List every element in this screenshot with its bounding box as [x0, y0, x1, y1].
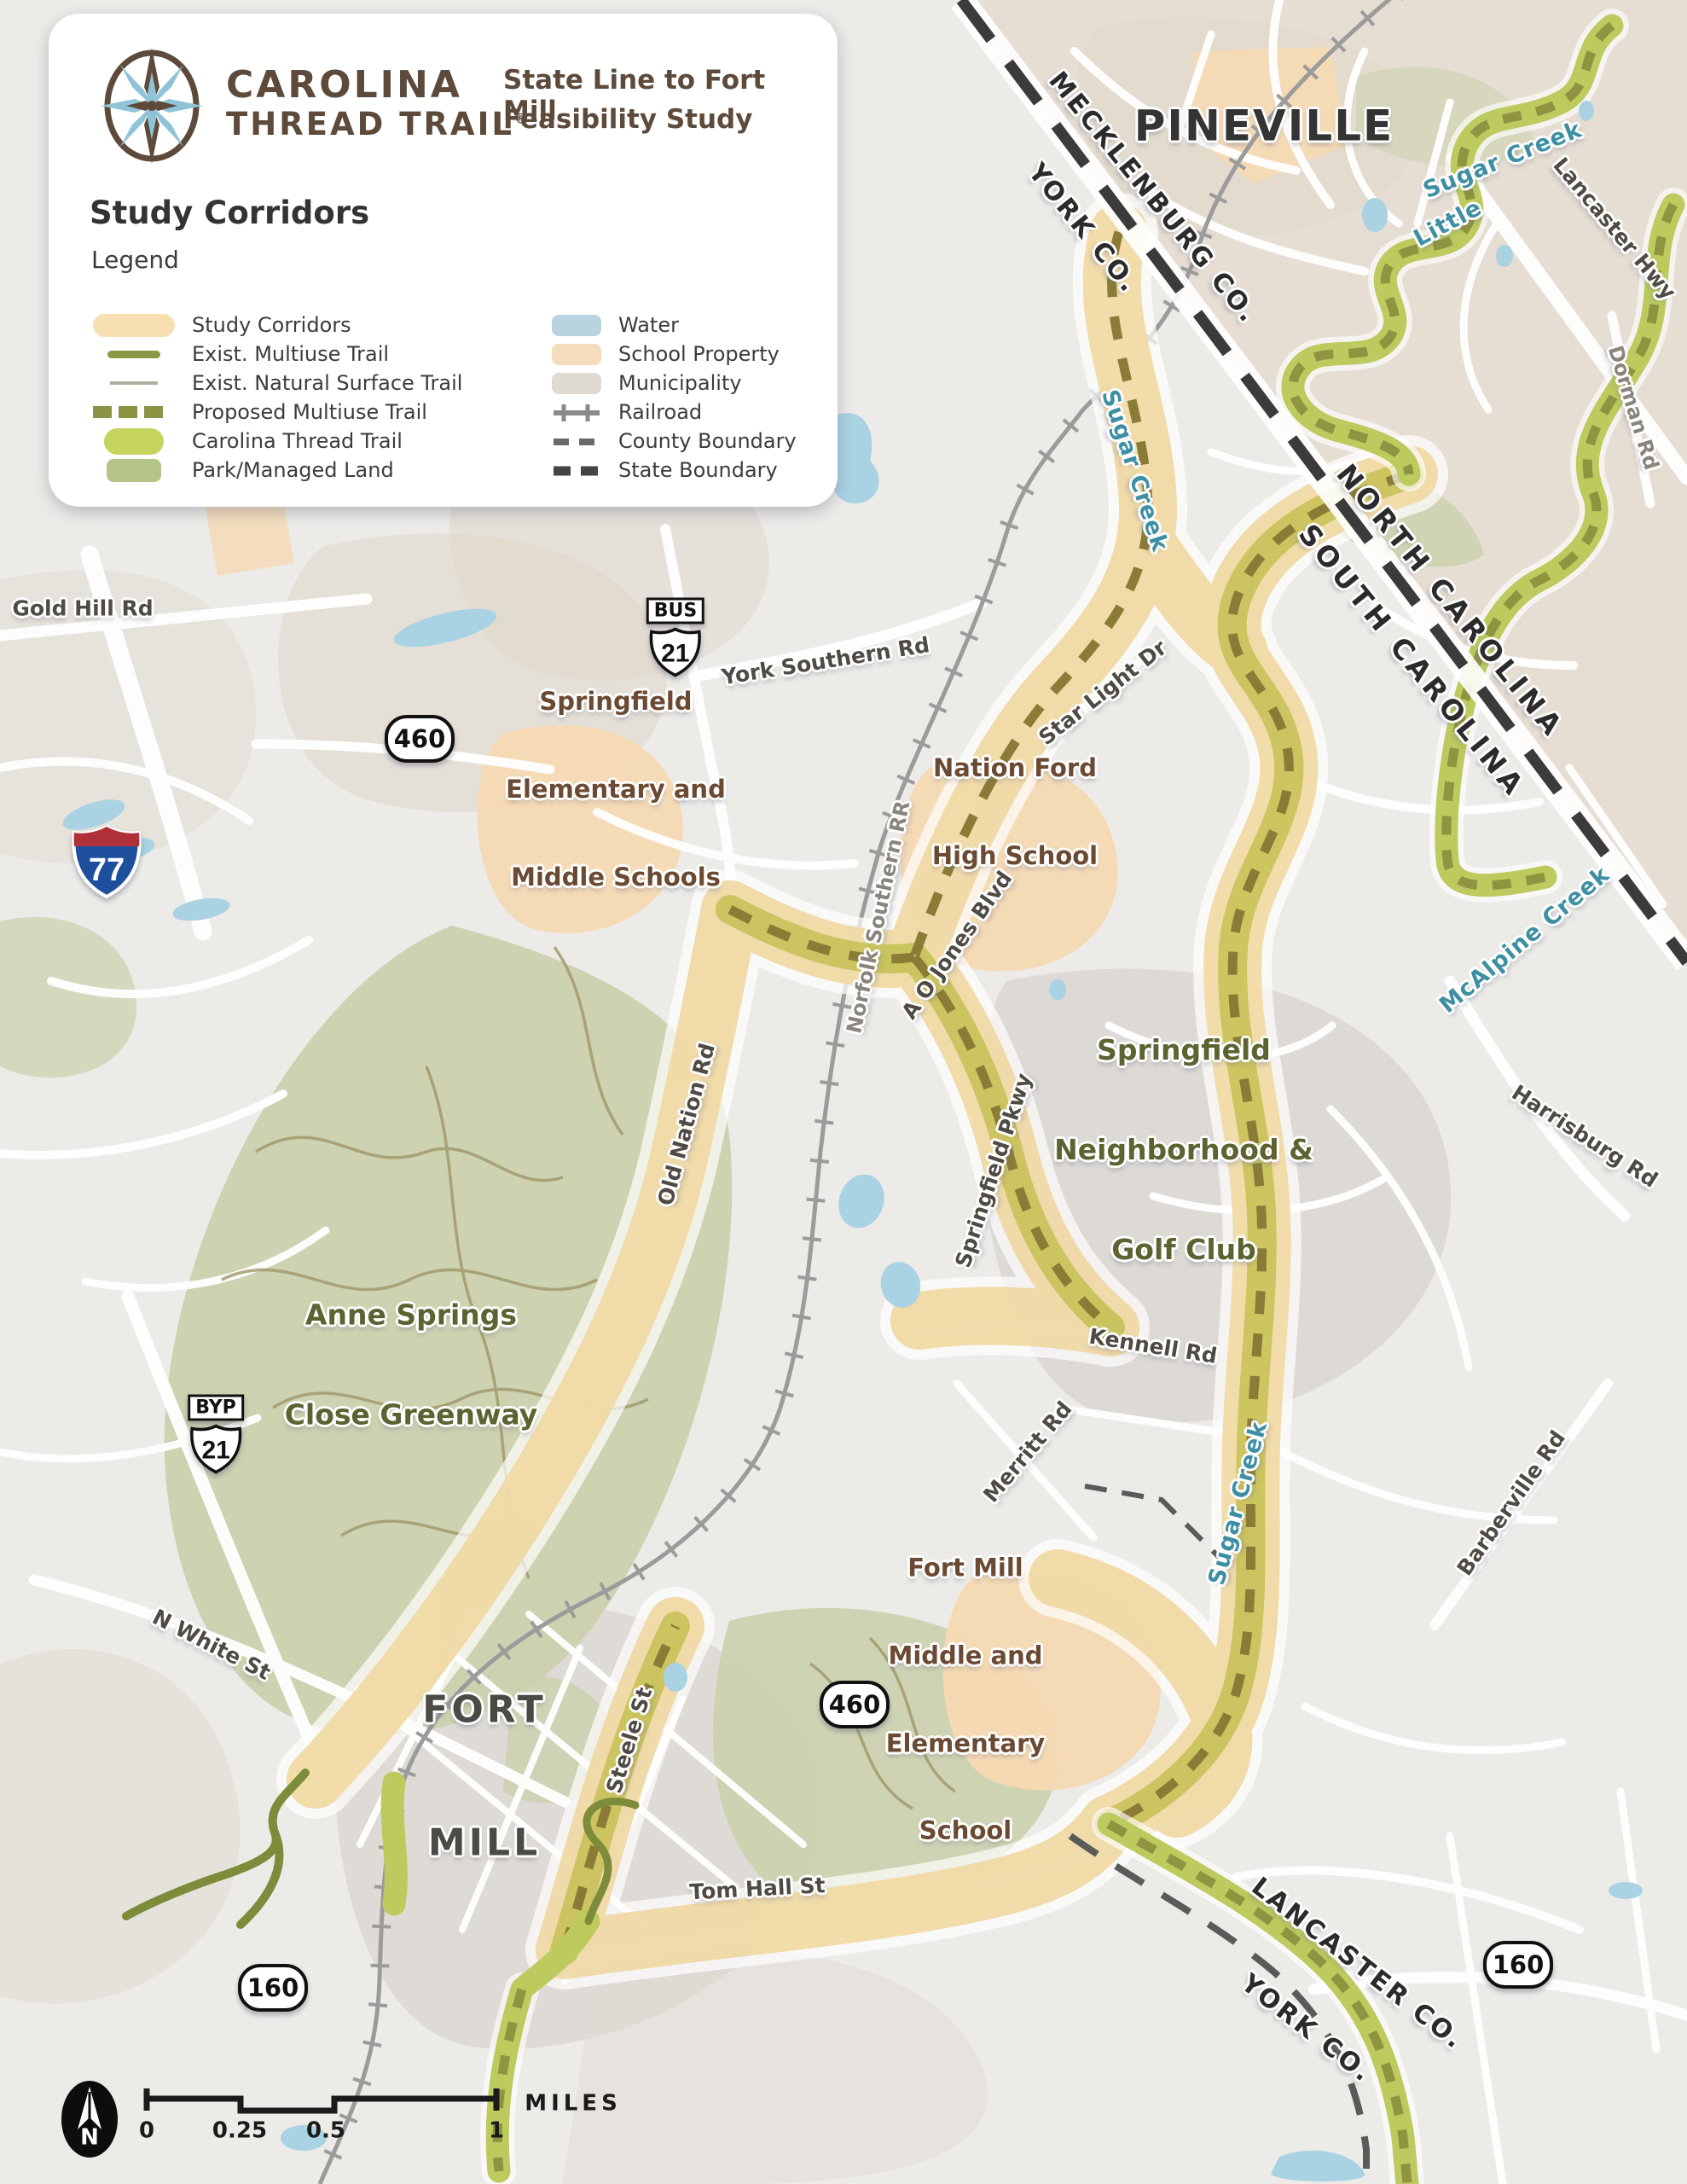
- legend-item-natural-surface: Exist. Natural Surface Trail: [93, 369, 462, 398]
- legend-item-state-boundary: State Boundary: [552, 456, 778, 485]
- multiuse-trail-swatch: [107, 351, 160, 358]
- school-property-swatch: [552, 344, 601, 365]
- legend-item-water: Water: [552, 311, 679, 340]
- legend-item-carolina-thread-trail: Carolina Thread Trail: [93, 427, 403, 456]
- legend-header: CAROLINA THREAD TRAIL® State Line to For…: [81, 39, 815, 167]
- railroad-swatch: [552, 402, 601, 423]
- park-swatch: [107, 459, 161, 482]
- legend-item-proposed-multiuse: Proposed Multiuse Trail: [93, 398, 427, 427]
- north-arrow: [61, 2081, 118, 2158]
- brand-name-line1: CAROLINA: [226, 63, 462, 107]
- carolina-thread-trail-logo: [96, 46, 207, 166]
- municipality-swatch: [552, 373, 601, 394]
- legend-subtitle: Legend: [91, 246, 179, 274]
- county-boundary-swatch: [552, 431, 601, 452]
- brand-name-line2: THREAD TRAIL®: [226, 106, 530, 142]
- map-page: { "header": { "brand_line1": "CAROLINA",…: [0, 0, 1687, 2184]
- map-title-line2: Feasibility Study: [503, 104, 752, 135]
- legend-item-exist-multiuse: Exist. Multiuse Trail: [93, 340, 389, 369]
- legend-item-county-boundary: County Boundary: [552, 427, 797, 456]
- legend-panel: CAROLINA THREAD TRAIL® State Line to For…: [49, 14, 838, 507]
- legend-item-study-corridors: Study Corridors: [93, 311, 351, 340]
- water-swatch: [552, 315, 601, 336]
- legend-item-railroad: Railroad: [552, 398, 702, 427]
- legend-item-park-land: Park/Managed Land: [93, 456, 394, 485]
- legend-title: Study Corridors: [90, 195, 369, 231]
- ctt-swatch: [104, 428, 164, 455]
- study-corridor-swatch: [93, 314, 175, 337]
- legend-item-municipality: Municipality: [552, 369, 742, 398]
- legend-item-school-property: School Property: [552, 340, 780, 369]
- natural-surface-swatch: [110, 381, 158, 385]
- proposed-trail-swatch: [93, 406, 175, 418]
- state-boundary-swatch: [552, 460, 601, 481]
